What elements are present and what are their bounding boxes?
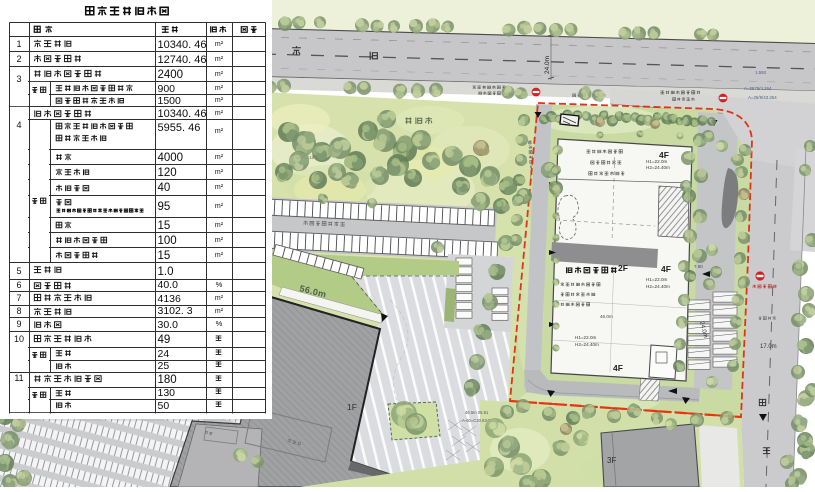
svg-text:m²: m² <box>215 169 224 176</box>
svg-text:50: 50 <box>158 400 170 412</box>
svg-text:100: 100 <box>158 235 177 247</box>
svg-text:H2=24.40m: H2=24.40m <box>575 342 599 347</box>
svg-text:m²: m² <box>215 252 224 259</box>
svg-text:24.0m: 24.0m <box>544 56 551 74</box>
svg-text:H1=22.0m: H1=22.0m <box>646 159 667 164</box>
svg-text:5: 5 <box>16 266 21 276</box>
svg-text:11: 11 <box>14 373 23 383</box>
svg-text:4136: 4136 <box>158 293 182 305</box>
svg-text:m²: m² <box>215 154 224 161</box>
svg-text:H2=24.40m: H2=24.40m <box>646 165 670 170</box>
svg-text:7.00: 7.00 <box>694 264 703 269</box>
svg-text:180: 180 <box>158 374 177 386</box>
svg-text:m²: m² <box>215 237 224 244</box>
svg-text:130: 130 <box>158 387 176 399</box>
svg-text:m²: m² <box>215 222 224 229</box>
svg-text:m²: m² <box>215 97 224 104</box>
svg-text:H1=22.0m: H1=22.0m <box>575 335 596 340</box>
svg-text:1F: 1F <box>347 402 357 412</box>
svg-text:40: 40 <box>158 182 171 194</box>
svg-text:900: 900 <box>158 83 176 95</box>
svg-text:m²: m² <box>215 128 224 135</box>
svg-text:1.0: 1.0 <box>158 266 174 278</box>
svg-text:1500: 1500 <box>158 95 182 107</box>
svg-text:40.0: 40.0 <box>158 279 179 291</box>
svg-text:4: 4 <box>16 120 21 130</box>
svg-text:m²: m² <box>215 308 224 315</box>
svg-text:24: 24 <box>158 348 170 360</box>
svg-text:30.0: 30.0 <box>158 319 179 331</box>
svg-text:m²: m² <box>215 184 224 191</box>
svg-text:m²: m² <box>215 56 224 63</box>
svg-text:8: 8 <box>16 306 21 316</box>
svg-text:1: 1 <box>16 39 21 49</box>
svg-text:%: % <box>216 280 223 289</box>
svg-text:9: 9 <box>16 319 21 329</box>
svg-text:2400: 2400 <box>158 69 184 81</box>
svg-text:H2=24.40m: H2=24.40m <box>646 284 670 289</box>
svg-text:95: 95 <box>158 201 171 213</box>
svg-text:120: 120 <box>158 167 177 179</box>
svg-text:H1=22.0m: H1=22.0m <box>646 277 667 282</box>
svg-text:m²: m² <box>215 71 224 78</box>
svg-text:25: 25 <box>158 360 170 372</box>
svg-text:m²: m² <box>215 110 224 117</box>
svg-text:2F: 2F <box>618 263 628 273</box>
svg-text:3: 3 <box>16 74 21 84</box>
svg-text:6: 6 <box>16 280 21 290</box>
svg-text:3102. 3: 3102. 3 <box>158 305 193 317</box>
svg-text:15: 15 <box>158 220 171 232</box>
svg-text:7: 7 <box>16 293 21 303</box>
svg-text:A=2579/4.264: A=2579/4.264 <box>744 86 772 91</box>
svg-text:17.0m: 17.0m <box>760 344 777 350</box>
svg-text:10340. 46: 10340. 46 <box>158 39 207 51</box>
svg-text:2: 2 <box>16 54 21 64</box>
svg-text:12740. 46: 12740. 46 <box>158 54 207 66</box>
svg-text:1.593: 1.593 <box>755 70 767 75</box>
svg-text:46.0m: 46.0m <box>600 314 613 319</box>
svg-text:m²: m² <box>215 295 224 302</box>
svg-text:A=25/9/43.264: A=25/9/43.264 <box>748 95 777 100</box>
svg-text:15: 15 <box>158 250 171 262</box>
svg-text:m²: m² <box>215 203 224 210</box>
svg-text:10340. 46: 10340. 46 <box>158 108 207 120</box>
svg-text:4F: 4F <box>661 264 671 274</box>
svg-text:46.5m 05.81: 46.5m 05.81 <box>465 410 489 415</box>
svg-text:%: % <box>216 319 223 328</box>
svg-text:m²: m² <box>215 41 224 48</box>
svg-text:m²: m² <box>215 85 224 92</box>
svg-text:5955. 46: 5955. 46 <box>158 122 201 134</box>
svg-text:3F: 3F <box>607 456 616 465</box>
svg-text:4F: 4F <box>613 363 623 373</box>
svg-text:10: 10 <box>14 334 24 344</box>
svg-text:49: 49 <box>158 334 171 346</box>
svg-text:4000: 4000 <box>158 152 184 164</box>
